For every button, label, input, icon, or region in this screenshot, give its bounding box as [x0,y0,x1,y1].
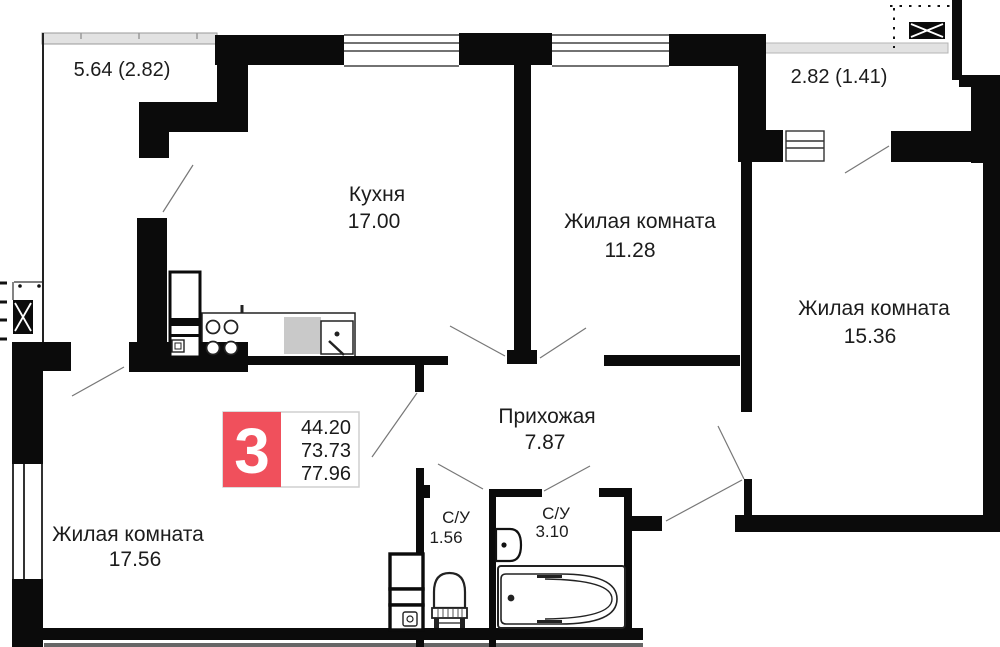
svg-text:11.28: 11.28 [605,239,656,262]
svg-text:1.56: 1.56 [429,528,462,547]
svg-text:2.82 (1.41): 2.82 (1.41) [791,66,888,88]
svg-text:3: 3 [234,415,270,487]
svg-text:17.56: 17.56 [109,548,162,571]
svg-text:7.87: 7.87 [525,431,566,454]
svg-text:77.96: 77.96 [301,463,351,485]
svg-text:Жилая комната: Жилая комната [52,523,204,546]
svg-text:Жилая комната: Жилая комната [798,297,950,320]
svg-text:44.20: 44.20 [301,417,351,439]
svg-text:С/У: С/У [442,508,470,527]
svg-text:Прихожая: Прихожая [498,405,595,428]
svg-text:3.10: 3.10 [535,522,568,541]
svg-text:73.73: 73.73 [301,440,351,462]
svg-text:15.36: 15.36 [844,325,897,348]
svg-text:17.00: 17.00 [348,210,401,233]
svg-text:С/У: С/У [542,504,570,523]
svg-text:5.64 (2.82): 5.64 (2.82) [74,59,171,81]
svg-text:Кухня: Кухня [349,183,405,206]
svg-text:Жилая комната: Жилая комната [564,210,716,233]
